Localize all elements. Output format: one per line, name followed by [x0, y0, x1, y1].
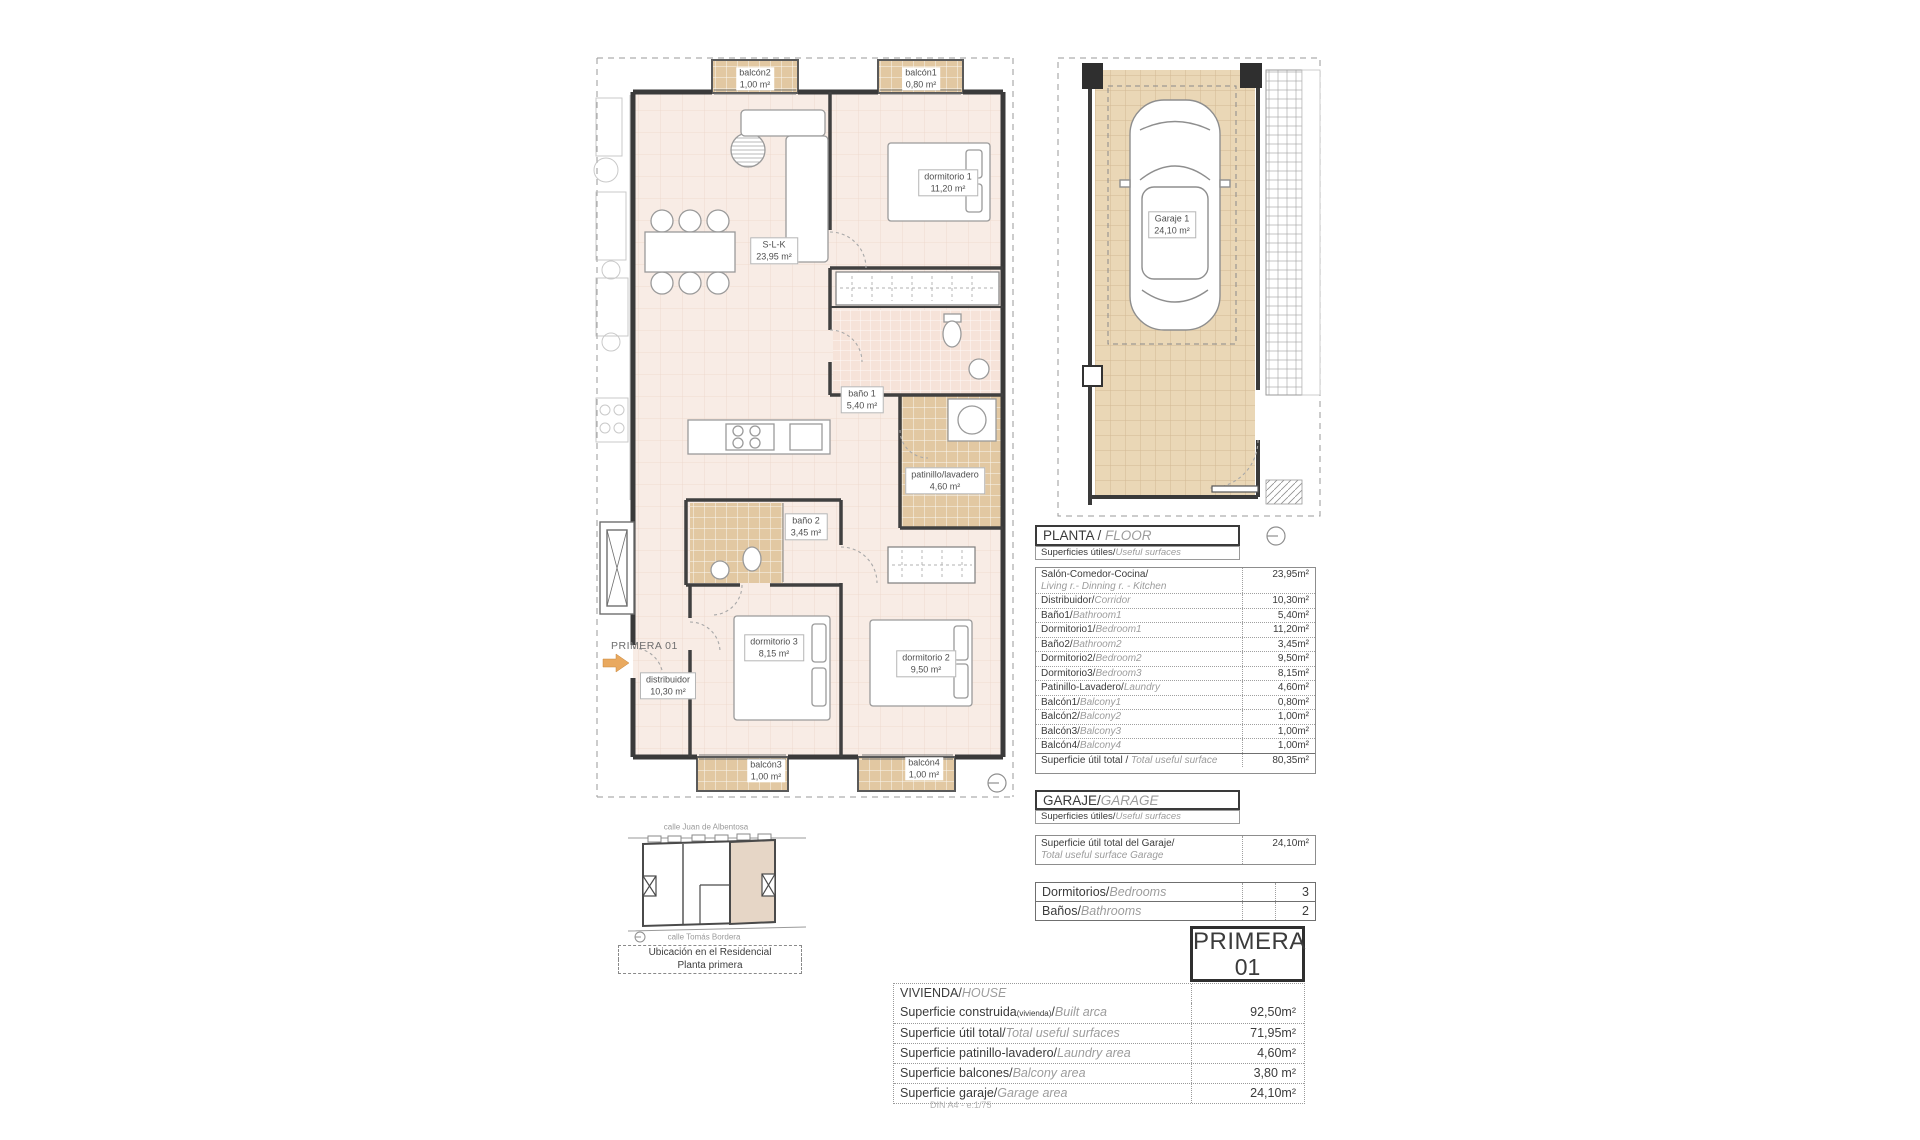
row-value: 11,20m²: [1242, 623, 1315, 637]
north-indicator-2: [1267, 527, 1285, 545]
row-value: 4,60m²: [1242, 681, 1315, 695]
unit-badge-number: 01: [1193, 955, 1302, 979]
row-value: 9,50m²: [1242, 652, 1315, 666]
table-row: Dormitorio2/Bedroom29,50m²: [1036, 651, 1315, 666]
table-row: Balcón1/Balcony10,80m²: [1036, 695, 1315, 710]
sofa: [741, 110, 825, 136]
row-label: Salón-Comedor-Cocina/Living r.- Dinning …: [1036, 568, 1242, 593]
row-label: Baños/Bathrooms: [1036, 902, 1242, 920]
row-label: Baño1/Bathroom1: [1036, 609, 1242, 623]
room-label-balcon4: balcón4 1,00 m²: [905, 757, 943, 780]
washbasin-2: [711, 561, 729, 579]
north-indicator: [988, 774, 1006, 792]
row-value: 8,15m²: [1242, 667, 1315, 681]
toilet-1: [943, 321, 961, 347]
row-label: Distribuidor/Corridor: [1036, 594, 1242, 608]
room-label-balcon2: balcón2 1,00 m²: [736, 67, 774, 90]
table-row: Superficie balcones/Balcony area3,80 m²: [894, 1063, 1304, 1083]
row-label: Baño2/Bathroom2: [1036, 638, 1242, 652]
garage-section-subtitle: Superficies útiles/Useful surfaces: [1035, 810, 1240, 824]
rug: [731, 133, 765, 167]
table-row: Distribuidor/Corridor10,30m²: [1036, 593, 1315, 608]
row-label: Dormitorios/Bedrooms: [1036, 883, 1242, 901]
row-label: Balcón1/Balcony1: [1036, 696, 1242, 710]
plan-sheet: balcón2 1,00 m² balcón1 0,80 m² dormitor…: [0, 0, 1920, 1140]
row-value: 5,40m²: [1242, 609, 1315, 623]
room-label-distribuidor: distribuidor 10,30 m²: [640, 672, 696, 699]
row-value: 1,00m²: [1242, 725, 1315, 739]
row-label: Superficie patinillo-lavadero/Laundry ar…: [894, 1044, 1191, 1063]
room-label-dormitorio2: dormitorio 2 9,50 m²: [896, 650, 956, 677]
north-indicator-map: [635, 932, 645, 942]
location-map-drawing: [628, 834, 806, 942]
washbasin-1: [969, 359, 989, 379]
room-label-bano2: baño 2 3,45 m²: [785, 513, 828, 540]
room-label-dormitorio1: dormitorio 1 11,20 m²: [918, 169, 978, 196]
stove: [726, 424, 774, 450]
row-value: 23,95m²: [1242, 568, 1315, 593]
table-row: Salón-Comedor-Cocina/Living r.- Dinning …: [1036, 568, 1315, 593]
row-value: 24,10m²: [1242, 836, 1315, 864]
unit-badge: PRIMERA 01: [1190, 926, 1305, 982]
stair-grid: [1266, 70, 1302, 395]
table-row: Balcón2/Balcony21,00m²: [1036, 709, 1315, 724]
house-table-header: VIVIENDA/HOUSE: [894, 984, 1304, 1003]
room-label-garaje1: Garaje 1 24,10 m²: [1148, 211, 1196, 238]
row-value: 71,95m²: [1191, 1024, 1304, 1043]
row-label: Dormitorio1/Bedroom1: [1036, 623, 1242, 637]
row-value: 3,80 m²: [1191, 1064, 1304, 1083]
unit-badge-floor: PRIMERA: [1193, 929, 1302, 955]
row-label: Balcón4/Balcony4: [1036, 739, 1242, 753]
table-row: Baño1/Bathroom15,40m²: [1036, 608, 1315, 623]
table-row: Balcón3/Balcony31,00m²: [1036, 724, 1315, 739]
table-row: Dormitorio3/Bedroom38,15m²: [1036, 666, 1315, 681]
garage-surfaces-table: Superficie útil total del Garaje/Total u…: [1035, 835, 1316, 865]
row-value: 1,00m²: [1242, 739, 1315, 753]
table-row: Dormitorios/Bedrooms3: [1036, 883, 1315, 901]
room-label-dormitorio3: dormitorio 3 8,15 m²: [744, 634, 804, 661]
room-label-patinillo: patinillo/lavadero 4,60 m²: [905, 467, 985, 494]
table-row: Patinillo-Lavadero/Laundry4,60m²: [1036, 680, 1315, 695]
row-value: 10,30m²: [1242, 594, 1315, 608]
bath1-tiles: [833, 310, 1003, 395]
table-row: Superficie patinillo-lavadero/Laundry ar…: [894, 1043, 1304, 1063]
floor-surfaces-table: Salón-Comedor-Cocina/Living r.- Dinning …: [1035, 567, 1316, 774]
scale-note: DIN A4 - e:1/75: [930, 1100, 992, 1110]
row-label: Superficie construida(vivienda)/Built ar…: [894, 1003, 1191, 1023]
room-label-balcon1: balcón1 0,80 m²: [902, 67, 940, 90]
elevator-core: [600, 522, 634, 614]
row-value: 3: [1242, 883, 1315, 901]
row-label: Balcón2/Balcony2: [1036, 710, 1242, 724]
row-value: 0,80m²: [1242, 696, 1315, 710]
row-value: 4,60m²: [1191, 1044, 1304, 1063]
table-row: Superficie construida(vivienda)/Built ar…: [894, 1003, 1304, 1023]
row-label: Superficie balcones/Balcony area: [894, 1064, 1191, 1083]
map-caption-planta: Planta primera: [618, 959, 802, 974]
dining-table: [645, 232, 735, 272]
house-summary-table: VIVIENDA/HOUSE Superficie construida(viv…: [893, 983, 1305, 1104]
neighbour-ghost: [594, 95, 630, 500]
garage-section-title: GARAJE/GARAGE: [1035, 790, 1240, 810]
row-value: 1,00m²: [1242, 710, 1315, 724]
rooms-count-table: Dormitorios/Bedrooms3Baños/Bathrooms2: [1035, 882, 1316, 921]
row-label: Dormitorio2/Bedroom2: [1036, 652, 1242, 666]
row-label: Dormitorio3/Bedroom3: [1036, 667, 1242, 681]
row-value: 3,45m²: [1242, 638, 1315, 652]
row-label: Balcón3/Balcony3: [1036, 725, 1242, 739]
table-row: Superficie útil total/Total useful surfa…: [894, 1023, 1304, 1043]
row-label: Superficie útil total / Total useful sur…: [1036, 754, 1242, 768]
table-row: Dormitorio1/Bedroom111,20m²: [1036, 622, 1315, 637]
map-caption-residencial: Ubicación en el Residencial: [618, 945, 802, 960]
floor-section-subtitle: Superficies útiles/Useful surfaces: [1035, 546, 1240, 560]
sink-unit: [790, 424, 822, 450]
garage-plan-drawing: [1058, 58, 1320, 545]
bath2-shower-tiles: [690, 503, 783, 583]
row-label: Superficie útil total del Garaje/Total u…: [1036, 836, 1242, 864]
table-row: Baño2/Bathroom23,45m²: [1036, 637, 1315, 652]
toilet-2: [743, 547, 761, 571]
street-label-bottom: calle Tomás Bordera: [668, 933, 741, 942]
room-label-slk: S-L-K 23,95 m²: [750, 237, 798, 264]
row-value: 80,35m²: [1242, 754, 1315, 768]
room-label-bano1: baño 1 5,40 m²: [841, 386, 884, 413]
table-row: Baños/Bathrooms2: [1036, 901, 1315, 920]
street-label-top: calle Juan de Albentosa: [664, 823, 749, 832]
floor-section-title: PLANTA / FLOOR: [1035, 525, 1240, 546]
unit-entry-marker: PRIMERA 01: [611, 640, 678, 652]
row-value: 92,50m²: [1191, 1003, 1304, 1023]
table-row: Superficie útil total / Total useful sur…: [1036, 753, 1315, 768]
room-label-balcon3: balcón3 1,00 m²: [747, 759, 785, 782]
ramp-hatch: [1266, 480, 1302, 504]
row-label: Patinillo-Lavadero/Laundry: [1036, 681, 1242, 695]
row-value: 24,10m²: [1191, 1084, 1304, 1103]
table-row: Superficie útil total del Garaje/Total u…: [1036, 836, 1315, 864]
row-label: Superficie útil total/Total useful surfa…: [894, 1024, 1191, 1043]
row-value: 2: [1242, 902, 1315, 920]
entry-arrow-icon: [603, 654, 629, 672]
table-row: Balcón4/Balcony41,00m²: [1036, 738, 1315, 753]
